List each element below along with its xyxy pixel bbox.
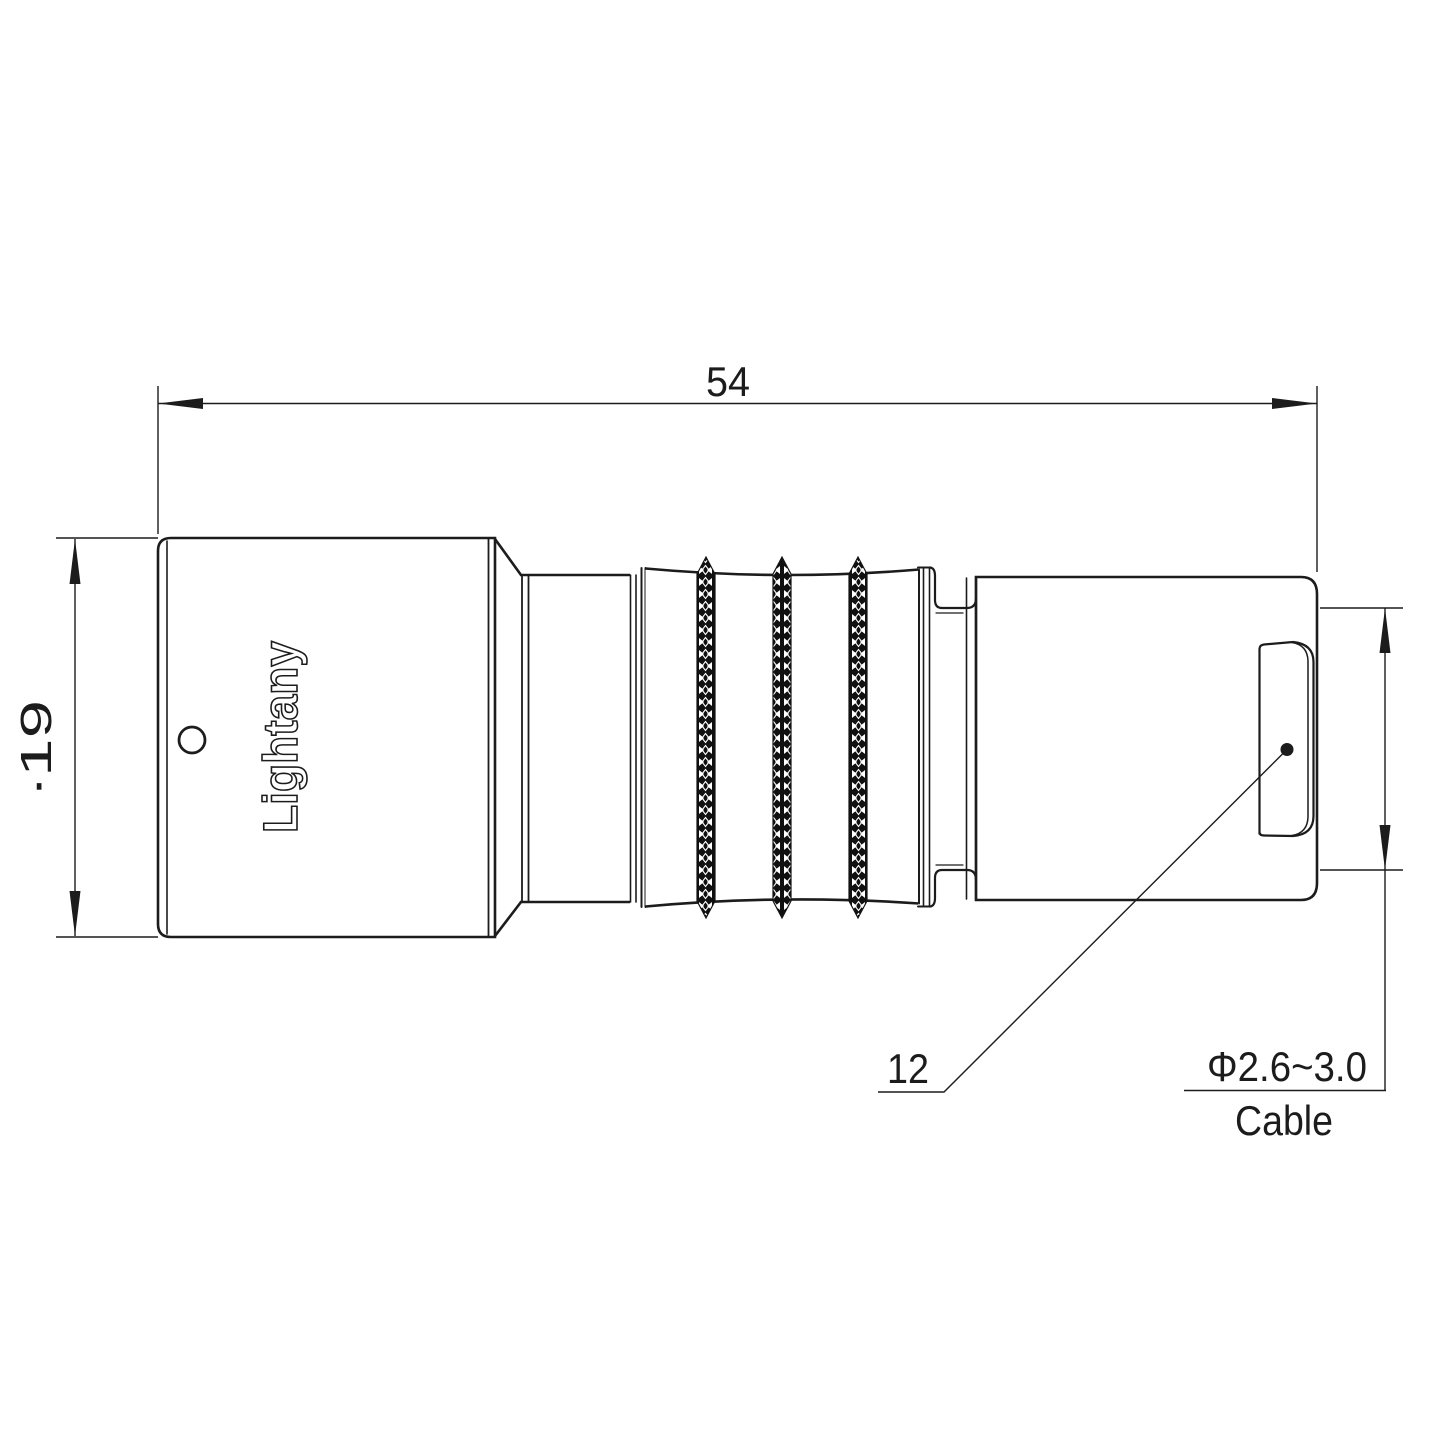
cable-diameter-label: Φ2.6~3.0	[1207, 1043, 1367, 1090]
cable-leader-dot	[1281, 743, 1294, 756]
shell-logo: Lightany	[255, 641, 308, 833]
knurl-section	[646, 557, 920, 918]
cable-bushing-outline	[1260, 642, 1314, 836]
dim-bushing-label: 12	[887, 1045, 929, 1092]
knurl-band	[773, 557, 791, 918]
dim-length-label: 54	[706, 358, 750, 405]
front-shell	[158, 538, 495, 937]
mid-cylinder	[521, 575, 630, 902]
technical-drawing: Lightany Lightany	[0, 0, 1440, 1440]
cable-bushing	[1260, 642, 1314, 836]
drawing-canvas: Lightany Lightany	[0, 0, 1440, 1440]
dim-diameter-label: ∙19	[12, 700, 61, 796]
shell-pin-hole	[179, 727, 205, 753]
front-collar-fill	[630, 568, 646, 907]
mid-cylinder-fill	[521, 575, 630, 902]
front-collar	[630, 568, 646, 907]
knurl-band	[697, 557, 715, 918]
cable-text-label: Cable	[1235, 1097, 1333, 1144]
rear-collar-fill	[918, 567, 935, 907]
rear-collar	[918, 567, 935, 907]
knurl-band	[849, 557, 867, 918]
front-shell-outline	[158, 538, 495, 937]
